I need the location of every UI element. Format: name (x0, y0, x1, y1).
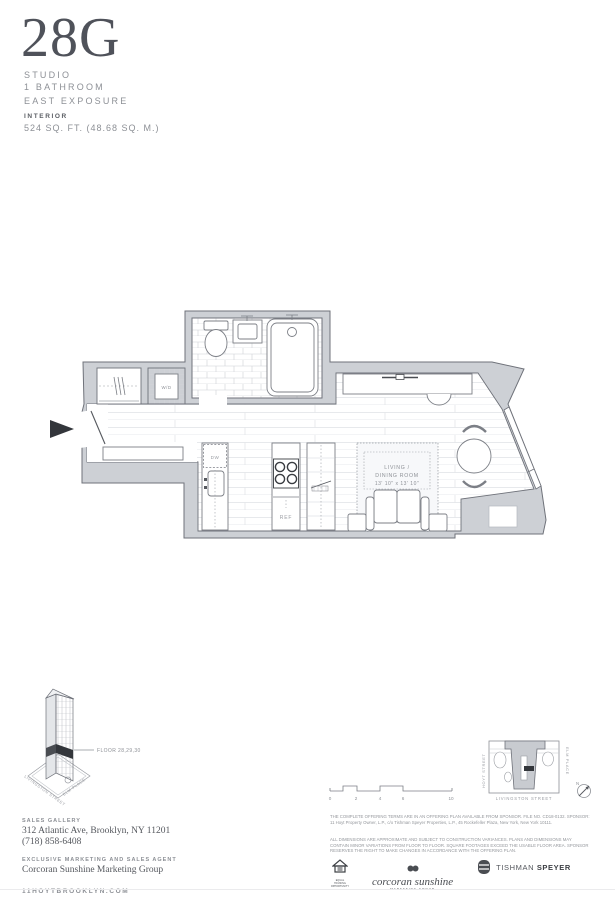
equal-housing-caption: EQUAL HOUSING OPPORTUNITY (330, 879, 350, 888)
street-hoyt: HOYT STREET (481, 753, 486, 788)
bottom-rule (0, 889, 615, 890)
alcove (489, 506, 517, 527)
north-arrow-icon: N (576, 781, 591, 798)
console-desk (343, 374, 472, 394)
street-elm: ELM PLACE (565, 747, 570, 775)
wd-label: W/D (161, 385, 171, 390)
bathroom (192, 315, 322, 406)
building-key: FLOOR 28,29,30 LIVINGSTON STREET ELM PLA… (23, 689, 140, 807)
sales-gallery-address: 312 Atlantic Ave, Brooklyn, NY 11201 (22, 826, 177, 837)
washer-dryer-closet: W/D (148, 368, 185, 404)
ottoman-left (348, 514, 366, 531)
entry-door-opening (80, 410, 94, 448)
floor-key-label: FLOOR 28,29,30 (97, 748, 141, 754)
disclaimer-dimensions: ALL DIMENSIONS ARE APPROXIMATE AND SUBJE… (330, 837, 590, 854)
kitchen-counter-pantry (307, 443, 335, 530)
dining-table (457, 439, 491, 473)
tishman-speyer-logo: TISHMAN SPEYER (477, 859, 571, 875)
floor-plan: W/D (50, 311, 546, 538)
tishman-speyer-icon (477, 859, 491, 875)
living-label-2: DINING ROOM (375, 473, 418, 479)
equal-housing-logo: EQUAL HOUSING OPPORTUNITY (330, 859, 350, 888)
street-elm-axon: ELM PLACE (62, 777, 87, 797)
kitchen-counter-range: REF (272, 443, 300, 530)
toilet-icon (204, 321, 228, 357)
living-label-1: LIVING / (384, 465, 410, 471)
corcoran-sunshine-logo: corcoran sunshine MARKETING GROUP (372, 859, 453, 891)
agent-label: EXCLUSIVE MARKETING AND SALES AGENT (22, 857, 177, 863)
kitchen-counter-sink: DW (202, 443, 228, 530)
north-label: N (576, 781, 579, 786)
logo-row: EQUAL HOUSING OPPORTUNITY corcoran sunsh… (330, 859, 571, 891)
ref-label: REF (280, 515, 292, 521)
tishman-text: TISHMAN (496, 863, 534, 872)
scale-2: 2 (355, 796, 358, 801)
sink-icon (233, 316, 262, 343)
bathroom-door-opening (199, 395, 227, 406)
street-livingston-axon: LIVINGSTON STREET (23, 774, 66, 807)
sales-gallery-phone: (718) 858-6408 (22, 837, 177, 848)
agent-name: Corcoran Sunshine Marketing Group (22, 865, 177, 876)
street-livingston: LIVINGSTON STREET (496, 796, 553, 801)
sales-gallery-block: SALES GALLERY 312 Atlantic Ave, Brooklyn… (22, 818, 177, 895)
entry-bench (103, 447, 183, 460)
closet (97, 368, 141, 404)
entry-arrow-icon (50, 420, 74, 438)
corcoran-script: corcoran sunshine (372, 877, 453, 887)
bathtub-icon (267, 315, 318, 396)
scale-bar: 0 2 4 6 10 (329, 786, 454, 801)
ottoman-right (429, 514, 447, 531)
kitchen-sink (208, 471, 224, 496)
site-map: HOYT STREET ELM PLACE LIVINGSTON STREET … (481, 741, 591, 801)
scale-0: 0 (329, 796, 332, 801)
floor-plan-canvas: W/D (0, 0, 615, 900)
speyer-text: SPEYER (537, 863, 571, 872)
scale-4: 4 (379, 796, 382, 801)
scale-10: 10 (448, 796, 454, 801)
disclaimer-offering: THE COMPLETE OFFERING TERMS ARE IN AN OF… (330, 814, 590, 825)
tower (46, 689, 74, 781)
dw-label: DW (211, 455, 220, 460)
sun-icon (406, 865, 420, 872)
sales-gallery-label: SALES GALLERY (22, 818, 177, 824)
living-label-dims: 13' 10" x 13' 10" (375, 481, 419, 487)
scale-6: 6 (402, 796, 405, 801)
unit-location-marker (524, 766, 534, 771)
equal-housing-icon (332, 859, 348, 874)
